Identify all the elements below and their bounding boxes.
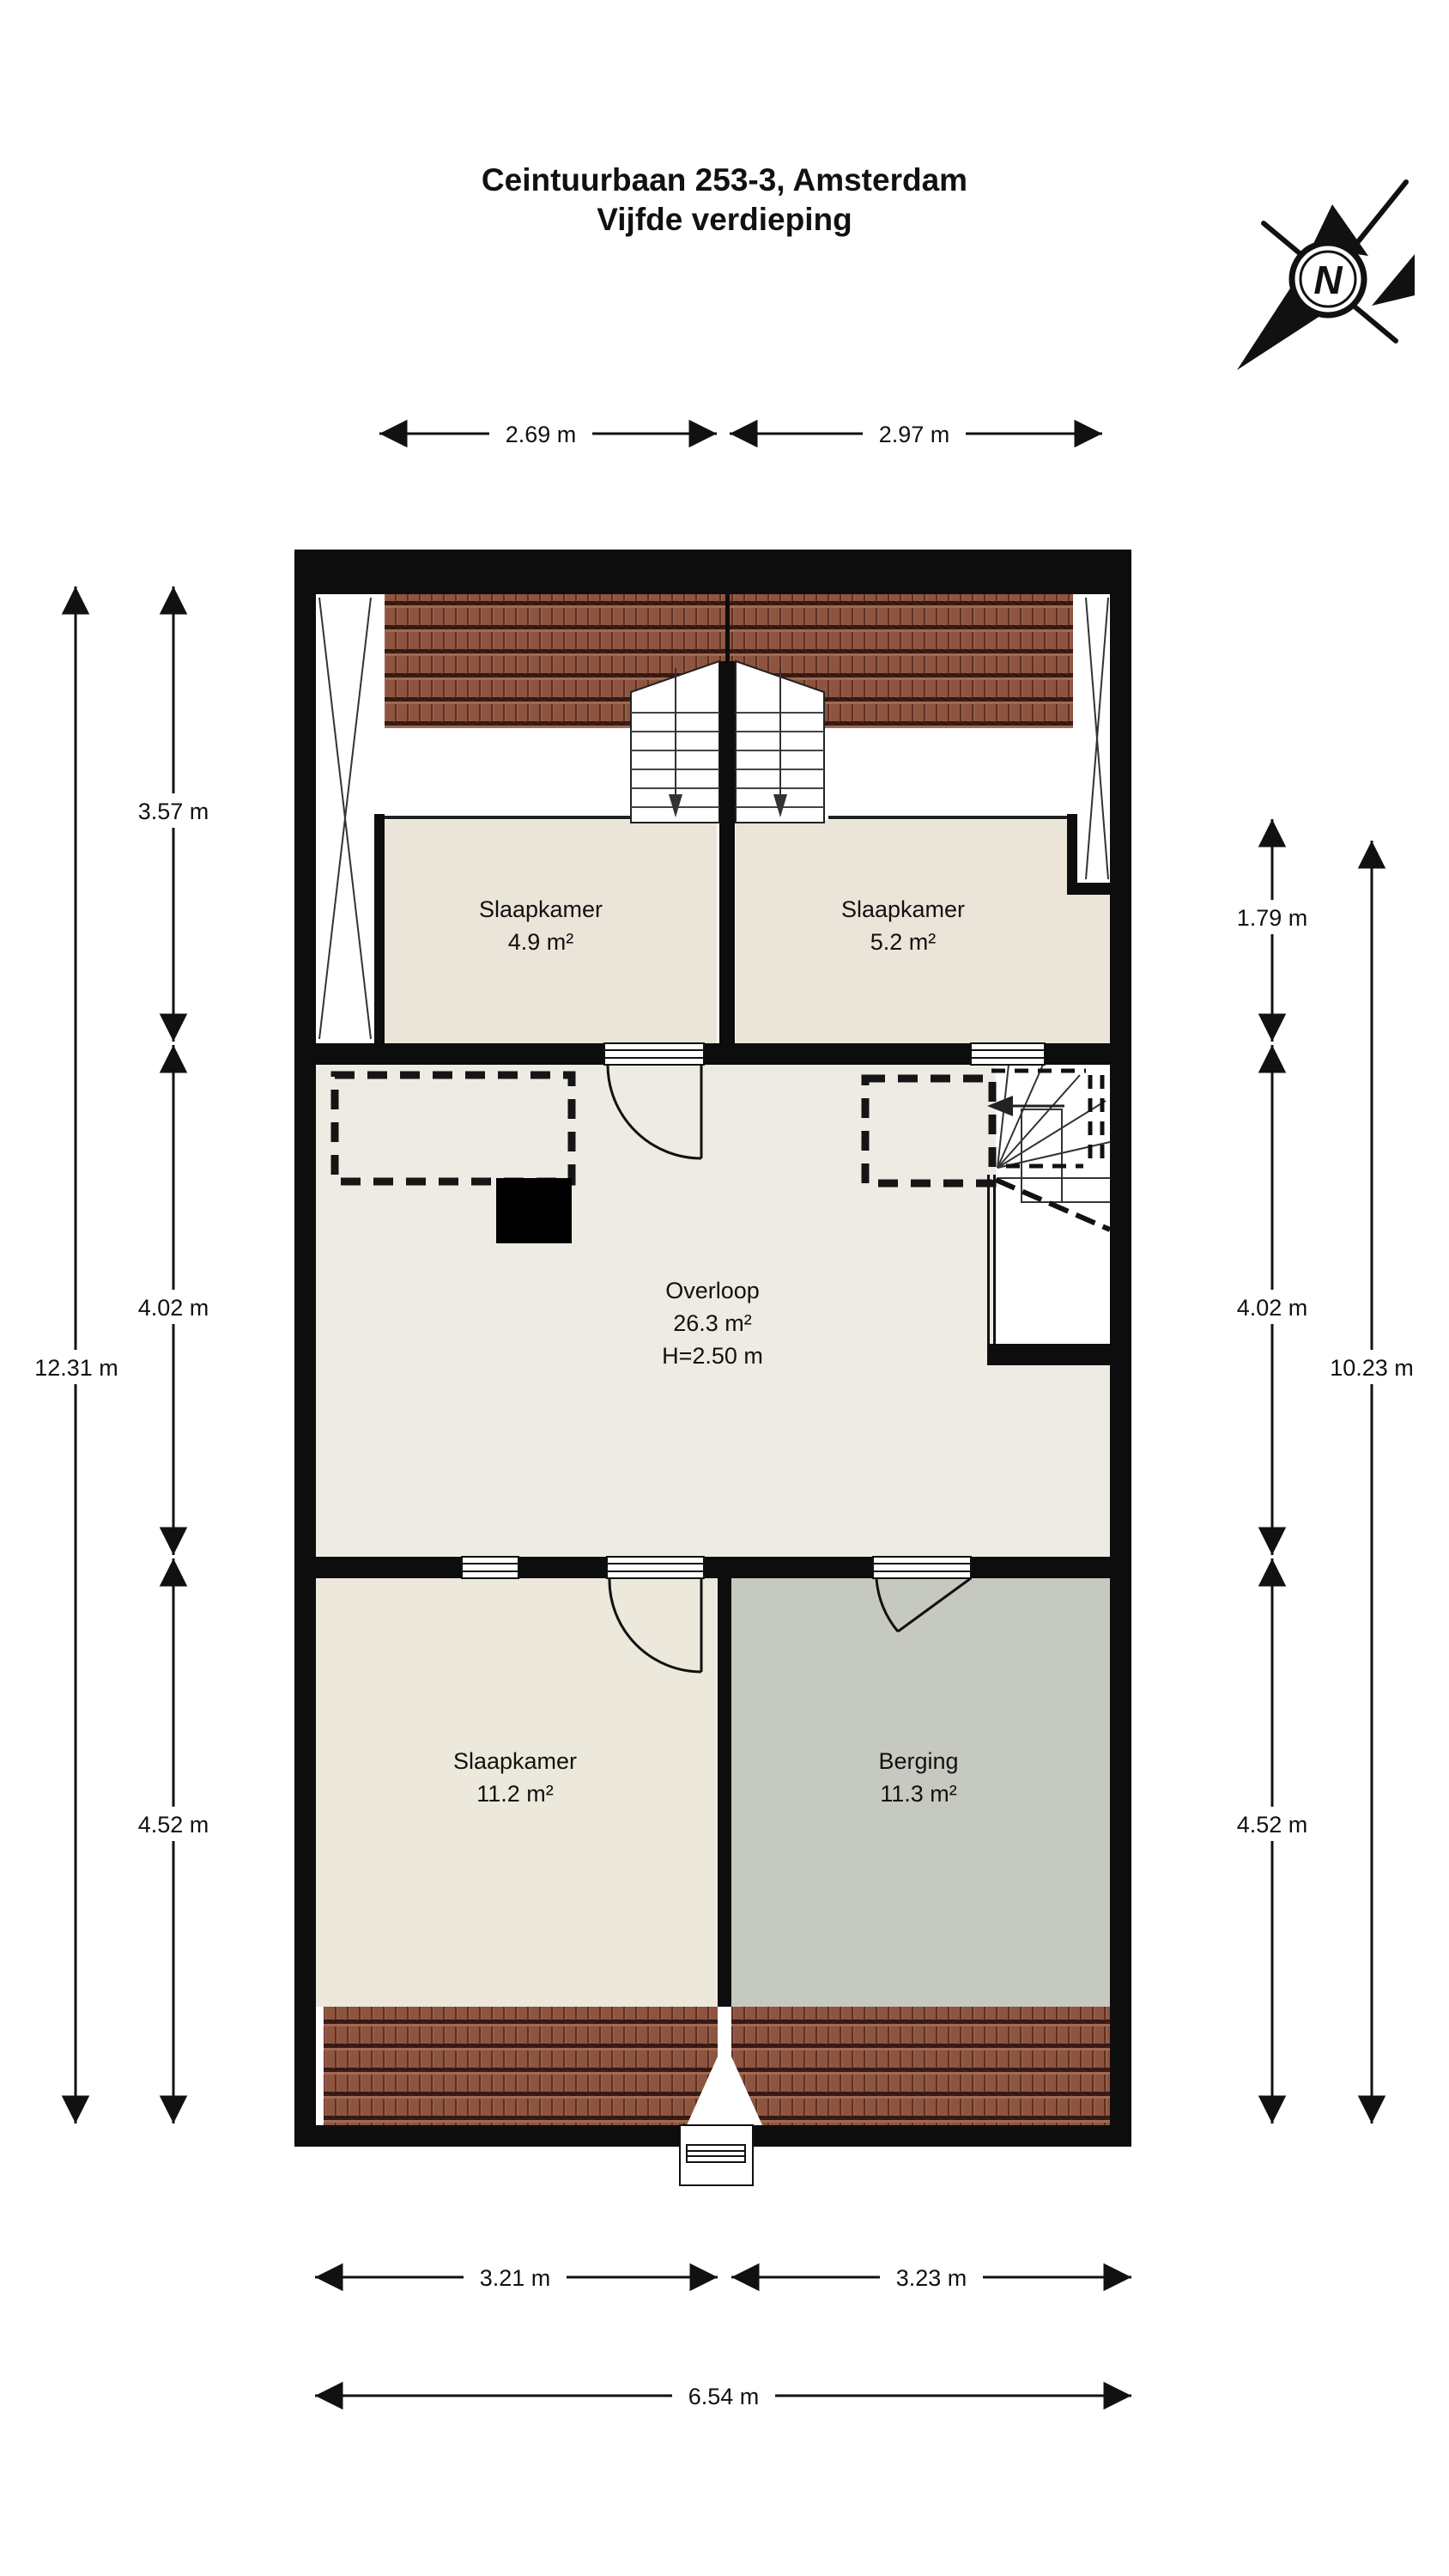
hall-area: 26.3 m² [673,1310,752,1336]
stair-balustrade-b [993,1175,996,1344]
dim-left-3: 4.52 m [138,1812,209,1838]
dim-right-1: 1.79 m [1237,905,1308,931]
door-band-bedroom1 [604,1043,704,1065]
stair-balustrade-a [987,1175,990,1344]
storage-area: 11.3 m² [880,1781,957,1807]
bedroom1-area: 4.9 m² [508,929,574,955]
sill-line-left [385,816,631,819]
dim-left-total: 12.31 m [34,1355,118,1381]
dim-right-3: 4.52 m [1237,1812,1308,1838]
floorplan-canvas: Ceintuurbaan 253-3, Amsterdam Vijfde ver… [0,0,1449,2576]
bedroom1-label: Slaapkamer [479,896,603,922]
wall-bedroom2-step [1067,883,1110,895]
roof-ridge-line [725,594,730,663]
bedroom3-area: 11.2 m² [476,1781,554,1807]
roof-gap-left [316,2007,324,2125]
door-band-bedroom3 [607,1557,704,1578]
stairwell [987,1065,1110,1344]
wall-outer-top [294,550,1131,594]
title-line1: Ceintuurbaan 253-3, Amsterdam [482,162,967,197]
dim-left-2: 4.02 m [138,1295,209,1321]
hall-height: H=2.50 m [662,1343,763,1369]
bedroom3-label: Slaapkamer [453,1748,577,1774]
roof-valley-slot [718,2007,731,2125]
dim-bottom-left: 3.21 m [480,2265,551,2291]
bedroom2-area: 5.2 m² [870,929,937,955]
dim-right-2: 4.02 m [1237,1295,1308,1321]
hall-label: Overloop [665,1278,760,1303]
window-band-hall [462,1557,518,1578]
compass-rose: N [1237,182,1415,370]
dim-left-1: 3.57 m [138,799,209,824]
chimney-block [496,1178,572,1243]
dim-top-right: 2.97 m [879,422,950,447]
compass-tick-se [1355,307,1396,341]
wall-center-bottom [718,1578,731,2007]
title-line2: Vijfde verdieping [597,202,852,237]
dim-right-total: 10.23 m [1330,1355,1414,1381]
wall-center-top [719,661,735,1065]
dim-top-left: 2.69 m [506,422,577,447]
compass-point-e [1372,254,1415,306]
compass-tick-nw [1264,223,1305,258]
sill-line-right [828,816,1067,819]
wall-bedroom1-left [374,814,385,1065]
plan-title: Ceintuurbaan 253-3, Amsterdam Vijfde ver… [482,162,967,237]
door-band-bedroom2 [971,1043,1045,1065]
floorplan-page: Ceintuurbaan 253-3, Amsterdam Vijfde ver… [0,0,1449,2576]
roof-window-bottom [680,2125,753,2185]
wall-outer-left [294,550,316,2147]
wall-outer-right [1110,550,1131,2147]
wall-stairwell-south [987,1344,1110,1365]
dim-bottom-right: 3.23 m [896,2265,967,2291]
door-band-storage [873,1557,971,1578]
wall-hall-south [316,1557,1110,1578]
compass-north-label: N [1313,258,1343,302]
wall-bedroom2-right [1067,814,1077,893]
storage-label: Berging [878,1748,958,1774]
bedroom2-label: Slaapkamer [841,896,965,922]
dim-bottom-total: 6.54 m [688,2384,760,2409]
